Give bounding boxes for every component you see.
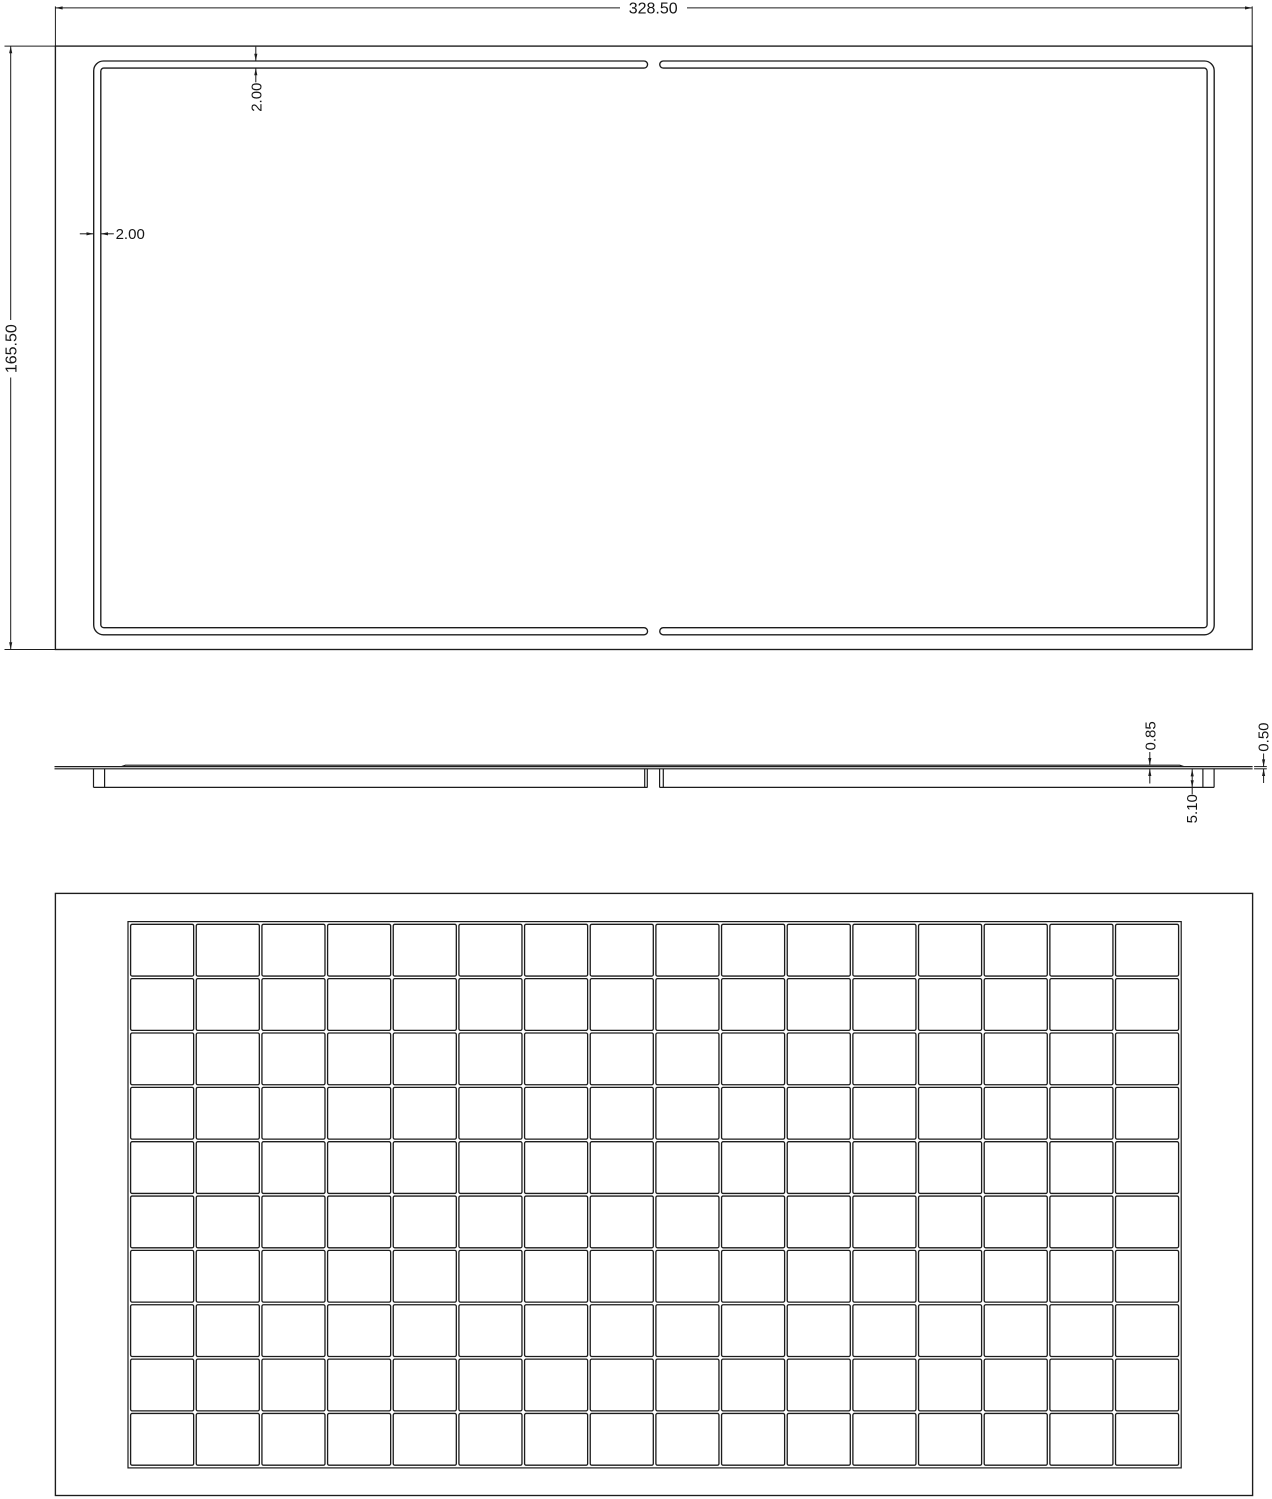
svg-text:2.00: 2.00 xyxy=(249,83,266,112)
svg-text:0.50: 0.50 xyxy=(1255,722,1272,751)
svg-text:0.85: 0.85 xyxy=(1143,721,1160,750)
svg-text:5.10: 5.10 xyxy=(1184,794,1201,823)
svg-text:165.50: 165.50 xyxy=(3,324,20,373)
svg-text:2.00: 2.00 xyxy=(116,226,145,243)
svg-text:328.50: 328.50 xyxy=(629,0,678,17)
